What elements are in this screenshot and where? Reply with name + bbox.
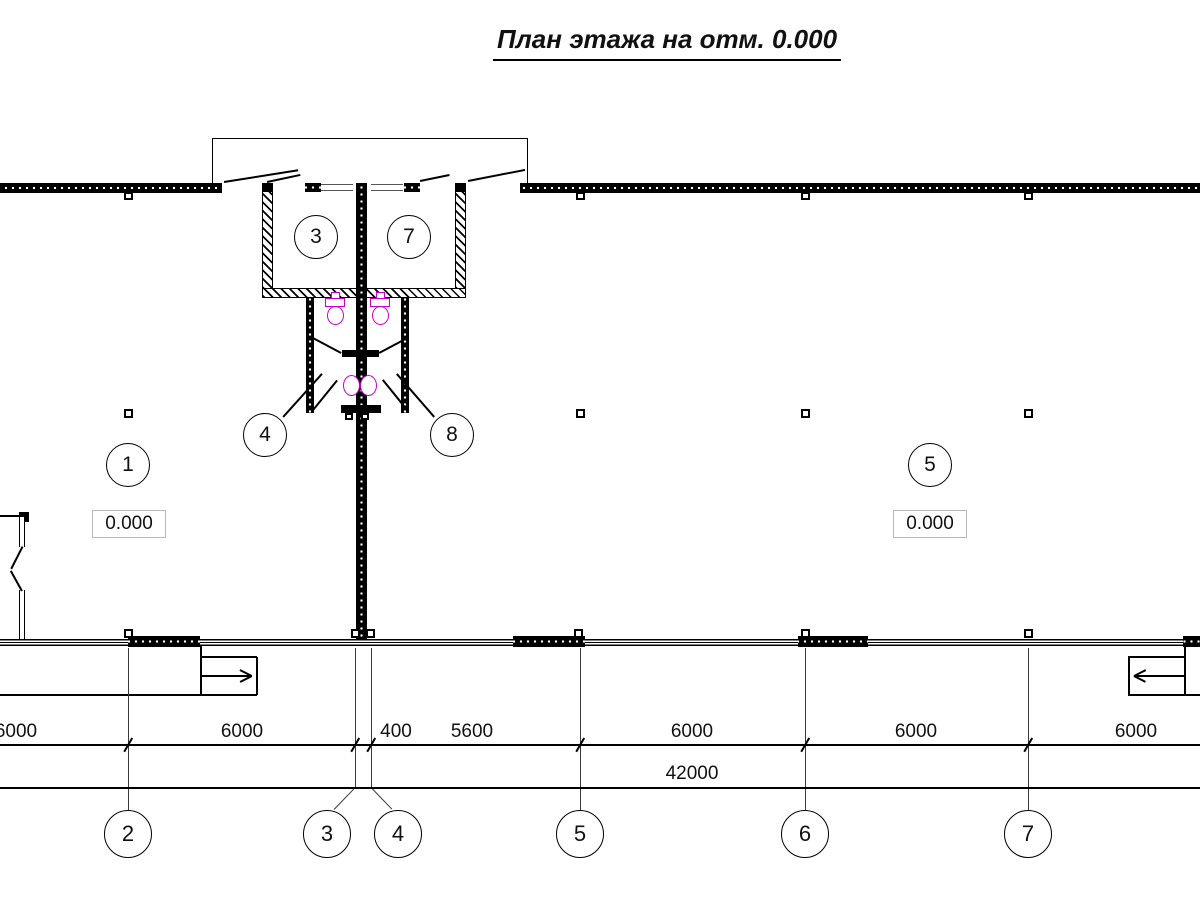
elevation-value: 0.000 [906,513,954,535]
porch-right-edge [1128,656,1185,658]
dimension-value: 6000 [202,721,282,743]
dimension-value: 6000 [876,721,956,743]
grid-extension-line [1028,648,1029,810]
room-tag-3: 3 [294,215,338,259]
room-tag-label: 3 [310,225,322,249]
column-tab [366,629,375,638]
column-marker [124,409,133,418]
axis-label: 2 [122,821,134,847]
column-tab [574,629,583,638]
axis-bubble-5: 5 [556,810,604,858]
stall-wall-right [401,298,409,413]
room-tag-label: 4 [259,423,271,447]
column-tab [124,192,133,200]
axis-bubble-6: 6 [781,810,829,858]
grid-extension-line [805,648,806,810]
west-door-leaf [10,570,22,591]
wc-glazed-screen [321,184,353,191]
column-marker [1024,409,1033,418]
porch-left-edge [256,657,258,695]
stall-stub-upper [342,350,379,357]
elevation-value: 0.000 [105,513,153,535]
dimension-line-total [0,787,1200,789]
room-tag-label: 7 [403,225,415,249]
stall-door-line [313,337,342,353]
grid-extension-line [371,648,372,788]
axis-label: 6 [799,821,811,847]
porch-right-arrow-shaft [1134,675,1184,677]
axis-label: 7 [1022,821,1034,847]
stall-stub-lower [341,405,381,413]
grid-extension-line [580,648,581,810]
room-tag-label: 5 [924,453,936,477]
column-marker [576,409,585,418]
grid-extension-kink [334,788,356,810]
porch-left-arrow-shaft [202,675,252,677]
stub-tab [345,413,353,420]
wc-glazed-screen [371,184,403,191]
room-tag-label: 1 [122,453,134,477]
top-wall-right [520,183,1200,193]
floor-plan-drawing: План этажа на отм. 0.000 3 7 [0,0,1200,900]
wc-top-segment [305,183,321,192]
porch-right-edge [1128,694,1200,696]
room-tag-1: 1 [106,443,150,487]
grid-extension-line [355,648,356,788]
leader-line [282,373,322,417]
axis-label: 3 [321,821,333,847]
axis-label: 5 [574,821,586,847]
elevation-mark-left: 0.000 [92,510,166,538]
bottom-wall-pier [1183,636,1200,647]
axis-bubble-7: 7 [1004,810,1052,858]
column-tab [1024,629,1033,638]
wc-top-segment [404,183,420,192]
dimension-value: 5600 [432,721,512,743]
column-tab [351,629,360,638]
column-tab [801,192,810,200]
room-tag-4: 4 [243,413,287,457]
column-tab [124,629,133,638]
column-tab [576,192,585,200]
column-tab [801,629,810,638]
axis-bubble-3: 3 [303,810,351,858]
dimension-value: 6000 [0,721,56,743]
dimension-value: 400 [356,721,436,743]
elevation-mark-right: 0.000 [893,510,967,538]
west-door-leaf [10,546,23,569]
toilet-bowl [372,306,389,325]
top-wall-left [0,183,222,193]
room-tag-5: 5 [908,443,952,487]
porch-left-edge [200,656,257,658]
porch-right-edge [1184,646,1186,695]
wc-wall-top-cap [455,183,466,192]
wc-wall-right [455,185,466,298]
porch-right-edge [1128,657,1130,695]
dimension-total-value: 42000 [642,763,742,785]
sink-basin [343,375,360,396]
room-tag-7: 7 [387,215,431,259]
west-wall-upper [19,517,25,547]
wc-wall-left [262,185,273,298]
stall-door-line [312,380,337,410]
stub-tab [361,413,369,420]
toilet-bowl [327,306,344,325]
dimension-value: 6000 [1096,721,1176,743]
dimension-line-1 [0,744,1200,746]
axis-bubble-2: 2 [104,810,152,858]
drawing-title: План этажа на отм. 0.000 [493,24,841,61]
axis-bubble-4: 4 [374,810,422,858]
grid-extension-line [128,648,129,810]
west-wall-lower [19,590,25,640]
sink-basin [360,375,377,396]
room-tag-label: 8 [446,423,458,447]
column-tab [1024,192,1033,200]
bottom-wall-pier [128,636,200,647]
grid-extension-kink [371,787,393,809]
porch-left-edge [200,646,202,695]
wc-wall-top-cap [262,183,273,192]
column-marker [801,409,810,418]
room-tag-8: 8 [430,413,474,457]
stall-wall-left [306,298,314,413]
dimension-value: 6000 [652,721,732,743]
axis-label: 4 [392,821,404,847]
